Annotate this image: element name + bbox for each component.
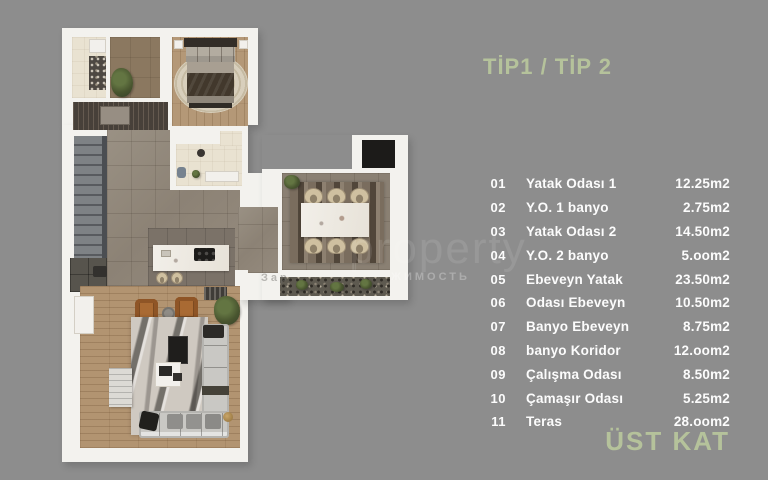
room-area: 8.75m2 — [683, 319, 730, 334]
nightstand-left — [174, 40, 183, 49]
bathroom-stool — [177, 167, 186, 178]
room-name: Yatak Odası 2 — [526, 224, 675, 239]
room-area: 8.50m2 — [683, 367, 730, 382]
room-row: 03Yatak Odası 214.50m2 — [484, 220, 730, 244]
kitchen-sink — [161, 250, 171, 257]
bed-foot-blanket — [187, 96, 234, 103]
room-number: 09 — [484, 367, 506, 382]
sofa-throw — [205, 414, 221, 429]
sofa-throw — [167, 414, 183, 429]
room-area: 5.oom2 — [682, 248, 730, 263]
room-name: Y.O. 2 banyo — [526, 248, 682, 263]
room-number: 04 — [484, 248, 506, 263]
room-name: Odası Ebeveyn — [526, 295, 675, 310]
closet-shelf — [100, 106, 130, 125]
room-name: Çalışma Odası — [526, 367, 683, 382]
dining-chair — [350, 188, 369, 204]
room-number: 07 — [484, 319, 506, 334]
terrace-plant — [330, 282, 344, 292]
study-plant — [111, 68, 133, 97]
room-list: 01Yatak Odası 112.25m202Y.O. 1 banyo2.75… — [484, 172, 730, 434]
room-number: 10 — [484, 391, 506, 406]
dining-chair — [327, 238, 346, 254]
room-row: 07Banyo Ebeveyn8.75m2 — [484, 315, 730, 339]
bathroom-vanity — [205, 171, 239, 182]
room-number: 06 — [484, 295, 506, 310]
room-name: Y.O. 1 banyo — [526, 200, 683, 215]
room-row: 02Y.O. 1 banyo2.75m2 — [484, 196, 730, 220]
room-name: banyo Koridor — [526, 343, 674, 358]
dining-chair — [304, 188, 323, 204]
room-area: 5.25m2 — [683, 391, 730, 406]
sofa-back-console — [202, 386, 229, 395]
watermark-fragment: ЖИМОСТЬ — [391, 271, 470, 283]
kitchen-island — [153, 245, 229, 271]
kitchen-stool — [156, 272, 168, 284]
plan-title: TİP1 / TİP 2 — [483, 54, 612, 80]
understairs-fixture — [93, 266, 107, 277]
cooktop — [194, 248, 215, 261]
bed-headboard — [184, 38, 237, 47]
bed-bench — [189, 103, 232, 108]
floor-plan-flyer: property Зар ЖИМОСТЬ TİP1 / TİP 2 01Yata… — [0, 0, 768, 480]
room-area: 23.50m2 — [675, 272, 730, 287]
dining-chair — [327, 188, 346, 204]
room-area: 12.25m2 — [675, 176, 730, 191]
room-number: 03 — [484, 224, 506, 239]
room-number: 01 — [484, 176, 506, 191]
dining-chair — [304, 238, 323, 254]
room-name: Çamaşır Odası — [526, 391, 683, 406]
floor-label: ÜST KAT — [484, 426, 730, 457]
gold-stool — [223, 412, 233, 422]
room-name: Yatak Odası 1 — [526, 176, 675, 191]
room-number: 02 — [484, 200, 506, 215]
laundry-appliance — [89, 56, 106, 90]
room-number: 08 — [484, 343, 506, 358]
wing-notch — [262, 135, 352, 169]
sofa-dark-pillow — [203, 325, 224, 338]
bathroom-plant — [192, 170, 200, 178]
kitchen-stool — [171, 272, 183, 284]
floor-plan: property Зар ЖИМОСТЬ — [0, 0, 460, 480]
room-row: 06Odası Ebeveyn10.50m2 — [484, 291, 730, 315]
sofa-black-pillow — [138, 410, 159, 431]
bed-sheet — [187, 62, 234, 73]
sofa-throw — [186, 414, 202, 429]
living-console — [74, 296, 94, 334]
laundry-cabinet — [89, 39, 106, 53]
slatted-bench — [109, 368, 132, 407]
room-row: 09Çalışma Odası8.50m2 — [484, 362, 730, 386]
staircase — [74, 136, 107, 258]
coffee-table-black — [168, 336, 188, 364]
room-row: 10Çamaşır Odası5.25m2 — [484, 386, 730, 410]
coffee-tray — [159, 366, 172, 376]
dining-plant — [284, 175, 300, 189]
living-plant — [214, 296, 240, 325]
room-area: 14.50m2 — [675, 224, 730, 239]
coffee-tray — [173, 373, 182, 381]
corridor-extension — [238, 207, 278, 273]
room-name: Ebeveyn Yatak — [526, 272, 675, 287]
room-area: 10.50m2 — [675, 295, 730, 310]
bed-pillows — [186, 47, 235, 62]
terrace-plant — [360, 279, 372, 289]
room-row: 05Ebeveyn Yatak23.50m2 — [484, 267, 730, 291]
room-row: 08banyo Koridor12.oom2 — [484, 339, 730, 363]
room-row: 04Y.O. 2 banyo5.oom2 — [484, 243, 730, 267]
room-area: 2.75m2 — [683, 200, 730, 215]
room-name: Banyo Ebeveyn — [526, 319, 683, 334]
room-row: 01Yatak Odası 112.25m2 — [484, 172, 730, 196]
watermark-fragment: Зар — [261, 272, 290, 284]
room-number: 05 — [484, 272, 506, 287]
nightstand-right — [239, 40, 248, 49]
bed-duvet — [187, 73, 234, 96]
room-area: 12.oom2 — [674, 343, 730, 358]
bathroom-lobe — [220, 131, 242, 146]
terrace-plant — [296, 280, 308, 290]
bathroom-lamp — [197, 149, 205, 157]
elevator-shaft — [362, 140, 395, 168]
